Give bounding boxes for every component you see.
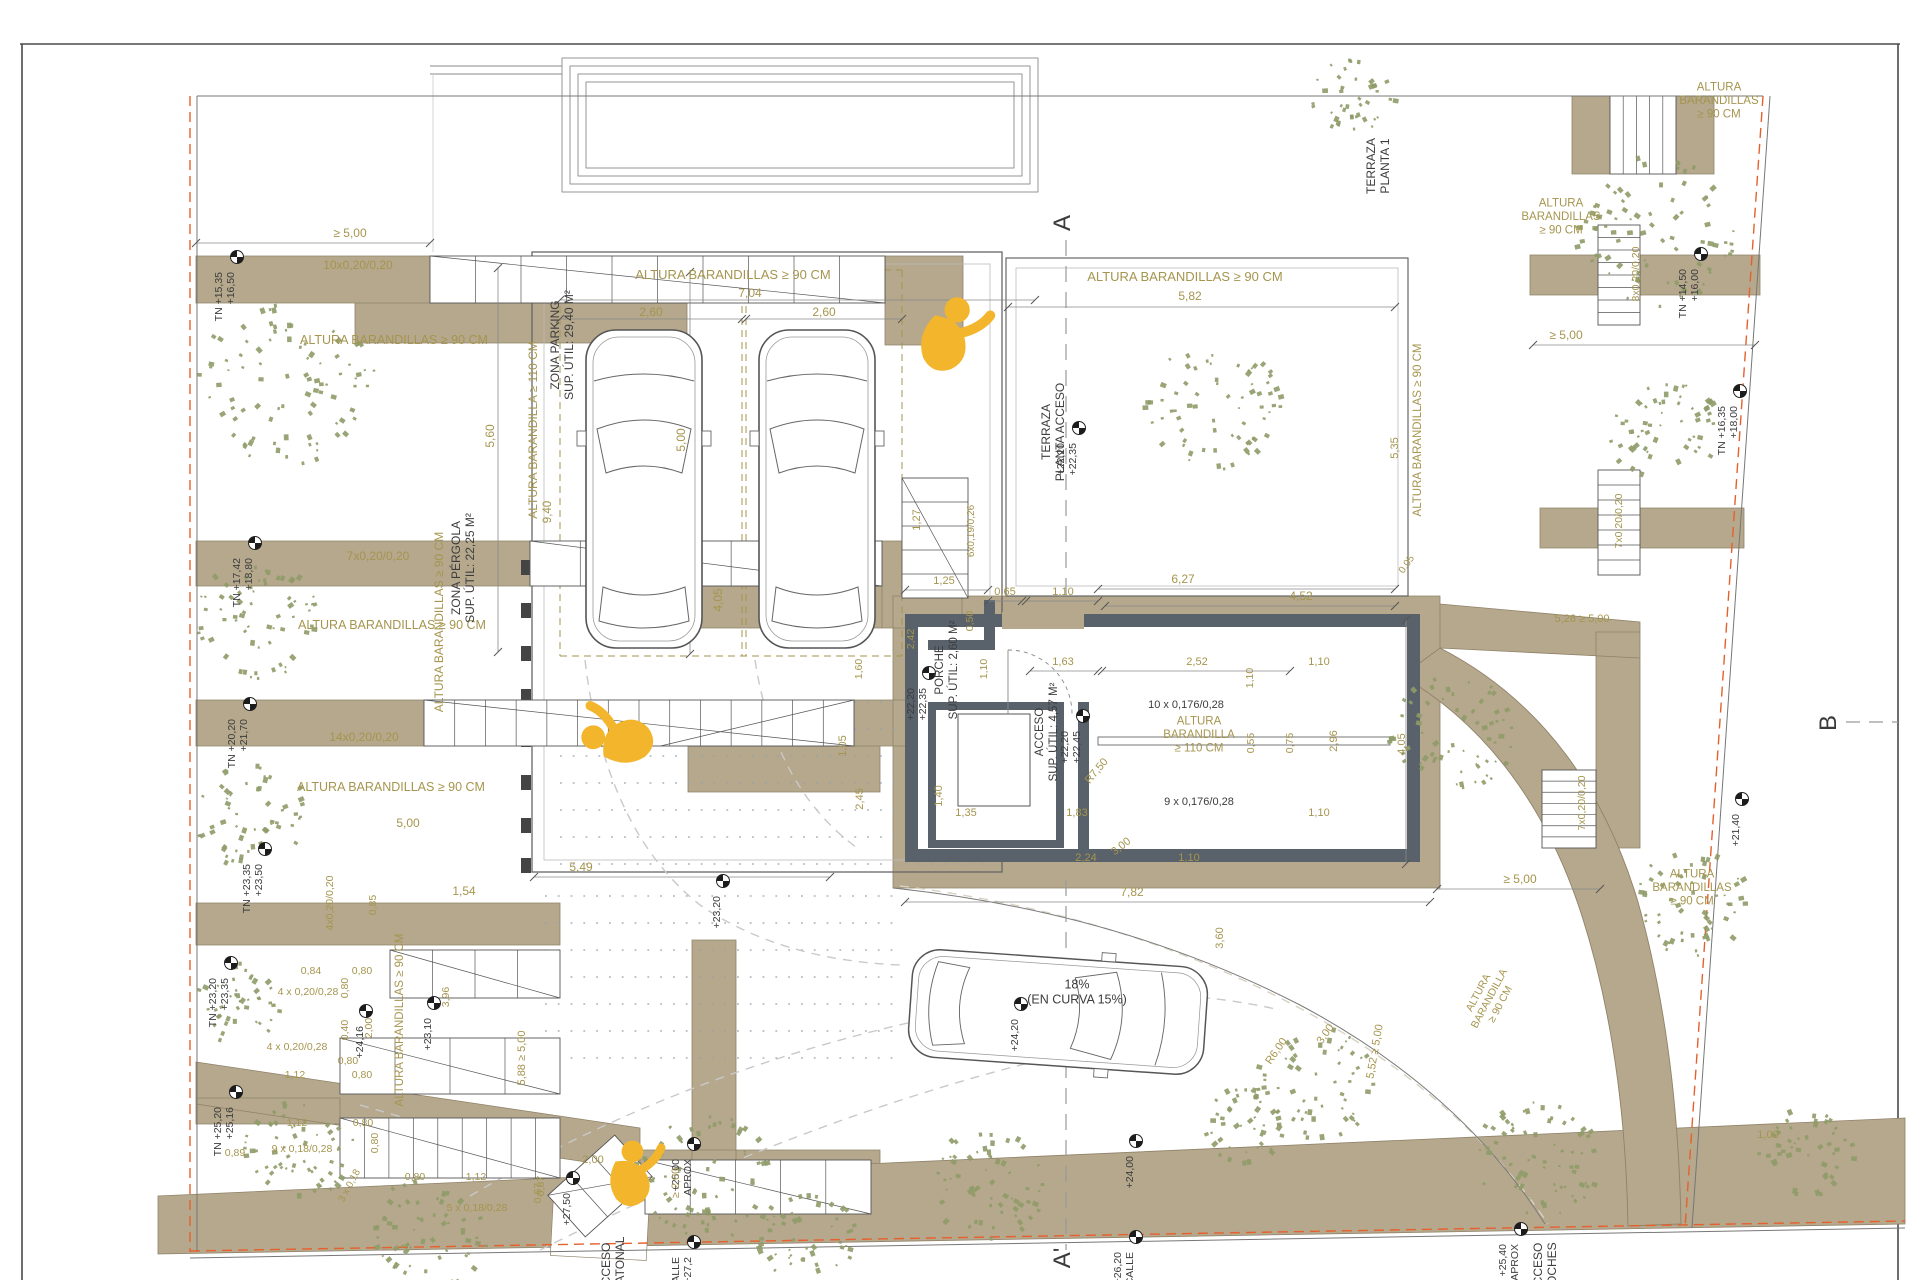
- level-text: +18,00TN +16,35: [1716, 406, 1740, 455]
- stair-note: 7x0,20/0,20: [347, 549, 410, 563]
- site-plan-drawing: +16,50TN +15,35+18,80TN +17,42+21,70TN +…: [0, 0, 1920, 1280]
- stair-note: 14x0,20/0,20: [329, 730, 399, 744]
- dim-label: 5,49: [569, 860, 593, 874]
- parking-car-2: [750, 330, 884, 648]
- dim-label: 1,10: [1244, 668, 1256, 689]
- dim-label: 0,80: [338, 1055, 359, 1067]
- dim-label: 2,42: [905, 629, 917, 650]
- level-text: CALLE+26,20: [1112, 1252, 1136, 1280]
- tree: [1609, 383, 1717, 477]
- railing-note: ALTURA BARANDILLAS ≥ 90 CM: [394, 934, 406, 1107]
- dim-label: 3,96: [440, 987, 452, 1008]
- level-text: +24,20: [1009, 1019, 1021, 1052]
- stair-note: 5 x 0,18/0,28: [447, 1202, 508, 1214]
- dim-label: 0,80: [353, 1117, 374, 1129]
- dim-label: 0,55: [1245, 733, 1257, 754]
- dim-label: 5,35: [1389, 437, 1401, 458]
- dim-label: ≥ 5,00: [333, 226, 367, 240]
- tree: [1142, 353, 1284, 471]
- stair-note: 6x0,19/0,26: [966, 504, 977, 557]
- dim-label: R6,00: [1263, 1036, 1290, 1067]
- stair-note: 8x0,20/0,20: [1630, 246, 1642, 301]
- level-text: APROX +27,2CALLE: [670, 1257, 694, 1280]
- dim-label: 6,27: [1171, 572, 1195, 586]
- dim-label: 2,45: [854, 788, 866, 809]
- dim-label: 0,75: [1284, 733, 1296, 754]
- section-marker-a-prime: A': [1049, 1248, 1076, 1269]
- dim-label: 2,60: [639, 305, 663, 319]
- level-marker: +23,20: [711, 875, 730, 929]
- dim-label: 1,10: [1052, 586, 1073, 598]
- level-marker: +18,00TN +16,35: [1716, 385, 1747, 456]
- dim-label: 1,12: [285, 1069, 306, 1081]
- dim-label: 1,10: [1308, 807, 1329, 819]
- dim-label: 0,84: [301, 965, 322, 977]
- dim-label: 1,27: [911, 509, 923, 530]
- railing-note: ALTURA BARANDILLAS ≥ 90 CM: [300, 333, 488, 347]
- dim-label: 2,60: [812, 305, 836, 319]
- street-label-acceso-coches: ACCESOCOCHES: [1531, 1242, 1559, 1280]
- street-label-acceso-peatonal: ACCESOPEATONAL: [599, 1236, 627, 1280]
- stair-note: 4 x 0,20/0,28: [278, 986, 339, 998]
- level-text: +24,00: [1124, 1156, 1136, 1189]
- tree: [1311, 58, 1399, 130]
- dim-label: 5,00: [396, 816, 420, 830]
- dim-label: 0,05: [1397, 553, 1417, 576]
- stair-note: 4 x 0,20/0,28: [267, 1041, 328, 1053]
- dim-label: 1,63: [1052, 656, 1073, 668]
- dim-label: ≥ 2,00: [670, 1168, 682, 1199]
- railing-note: ALTURABARANDILLA≥ 90 CM: [1458, 961, 1521, 1036]
- tree: [197, 764, 305, 866]
- section-marker-a: A: [1049, 215, 1076, 231]
- dim-label: 0,89: [225, 1147, 246, 1159]
- dim-label: ≥ 5,00: [1503, 872, 1537, 886]
- parking-car-1: [577, 330, 711, 648]
- dim-label: 0,65: [994, 586, 1015, 598]
- dim-label: 0,80: [405, 1171, 426, 1183]
- stair-note: 4x0,20/0,20: [324, 875, 336, 930]
- dim-label: 1,60: [853, 659, 865, 680]
- dim-label: 0,50: [964, 611, 976, 632]
- room-label-terraza-planta-1: TERRAZAPLANTA 1: [1364, 138, 1392, 194]
- dim-label: 1,12: [287, 1117, 308, 1129]
- dim-label: 2,52: [1186, 656, 1207, 668]
- level-text: +16,50TN +15,35: [213, 272, 237, 321]
- railing-note: ALTURA BARANDILLAS ≥ 90 CM: [297, 780, 485, 794]
- dim-label: 5,52 ≥ 5,00: [1364, 1023, 1385, 1079]
- stair-note: 10x0,20/0,20: [323, 258, 393, 272]
- railing-note: ALTURABARANDILLAS≥ 90 CM: [1652, 868, 1732, 907]
- room-label-terraza-planta-acceso: TERRAZAPLANTA ACCESO: [1039, 383, 1067, 481]
- dim-label: 7,04: [738, 286, 762, 300]
- dim-label: 1,12: [466, 1171, 487, 1183]
- level-text: +16,00TN +14,50: [1677, 269, 1701, 318]
- railing-note: ALTURA BARANDILLAS ≥ 90 CM: [1087, 269, 1282, 284]
- dim-label: 1,10: [978, 659, 990, 680]
- dim-label: 1,10: [1308, 656, 1329, 668]
- dim-label: 5,82: [1178, 289, 1202, 303]
- railing-note: ALTURA BARANDILLAS ≥ 90 CM: [635, 267, 830, 282]
- level-text: +21,40: [1730, 814, 1742, 847]
- dim-label: 7,82: [1120, 885, 1144, 899]
- railing-note: ALTURA BARANDILLA ≥ 110 CM: [526, 341, 540, 519]
- ramp-car: [906, 940, 1210, 1085]
- dim-label: 5,26 ≥ 5,00: [1555, 613, 1610, 625]
- dim-label: 0,80: [369, 1133, 381, 1154]
- level-text: +27,50: [561, 1193, 573, 1226]
- railing-note: ALTURABARANDILLAS≥ 90 CM: [1521, 197, 1601, 236]
- dim-label: 4,05: [711, 588, 725, 612]
- level-text: +22,45+22,20: [1059, 731, 1083, 764]
- dim-label: 0,80: [352, 965, 373, 977]
- dim-label: 3,60: [1214, 927, 1226, 948]
- floor-plan-sheet: +16,50TN +15,35+18,80TN +17,42+21,70TN +…: [0, 0, 1920, 1280]
- terrace-planta-1-outline: [430, 58, 1038, 252]
- dim-label: 0,40: [339, 1020, 351, 1041]
- stair-note: 9 x 0,176/0,28: [1164, 796, 1234, 808]
- dim-label: 2,00: [582, 1154, 603, 1166]
- stair-note: 9 x 0,18/0,28: [272, 1143, 333, 1155]
- level-text: +21,70TN +20,20: [226, 719, 250, 768]
- level-marker: +23,35TN +23,20: [207, 957, 238, 1028]
- stair-run: [390, 950, 560, 998]
- dim-label: 0,85: [367, 895, 379, 916]
- dim-label: 5,88 ≥ 5,00: [516, 1031, 528, 1086]
- railing-note: ALTURA BARANDILLAS ≥ 90 CM: [1412, 344, 1424, 517]
- dim-label: 3,00: [1314, 1022, 1336, 1046]
- dim-label: 2,96: [1328, 730, 1340, 751]
- dim-label: 0,87: [535, 1176, 547, 1197]
- tree: [197, 304, 375, 466]
- level-text: APROX+25,40: [1497, 1244, 1521, 1280]
- dim-label: 4,52: [1289, 589, 1313, 603]
- level-marker: +21,40: [1730, 793, 1749, 847]
- level-text: +18,80TN +17,42: [231, 558, 255, 607]
- dim-label: ≥ 5,00: [1549, 328, 1583, 342]
- dim-label: 5,00: [674, 428, 688, 452]
- dim-label: 1,00: [1757, 1129, 1778, 1141]
- dim-label: 1,25: [933, 575, 954, 587]
- stair-note: 7x0,20/0,20: [1576, 775, 1588, 830]
- dim-label: 1,54: [452, 884, 476, 898]
- section-marker-b: B: [1815, 715, 1842, 731]
- stair-note: 10 x 0,176/0,28: [1148, 699, 1224, 711]
- dim-label: 1,40: [933, 785, 945, 806]
- room-label-zona-parking: ZONA PARKINGSUP. ÚTIL: 29,40 M²: [548, 290, 576, 400]
- dim-label: 1,83: [1066, 807, 1087, 819]
- dim-label: 2,00: [363, 1018, 375, 1039]
- railing-note: ALTURA BARANDILLAS ≥ 90 CM: [298, 618, 486, 632]
- dim-label: 1,05: [837, 735, 849, 756]
- stair-note: 7x0,20/0,20: [1613, 493, 1625, 548]
- dim-label: 9,40: [542, 501, 554, 523]
- dim-label: 5,60: [483, 424, 497, 448]
- level-text: +23,10: [422, 1018, 434, 1051]
- level-text: +22,35+22,20: [905, 688, 929, 721]
- level-text: +23,20: [711, 896, 723, 929]
- dim-label: 1,10: [1178, 852, 1199, 864]
- dim-label: 1,35: [955, 807, 976, 819]
- dim-label: 0,80: [339, 978, 351, 999]
- room-label-zona-pergola: ZONA PÉRGOLASUP. ÚTIL: 22,25 M²: [448, 513, 477, 623]
- dim-label: 4,05: [1396, 733, 1408, 754]
- dim-label: 0,80: [352, 1069, 373, 1081]
- tree: [1253, 1027, 1375, 1140]
- dim-label: 2,24: [1075, 852, 1096, 864]
